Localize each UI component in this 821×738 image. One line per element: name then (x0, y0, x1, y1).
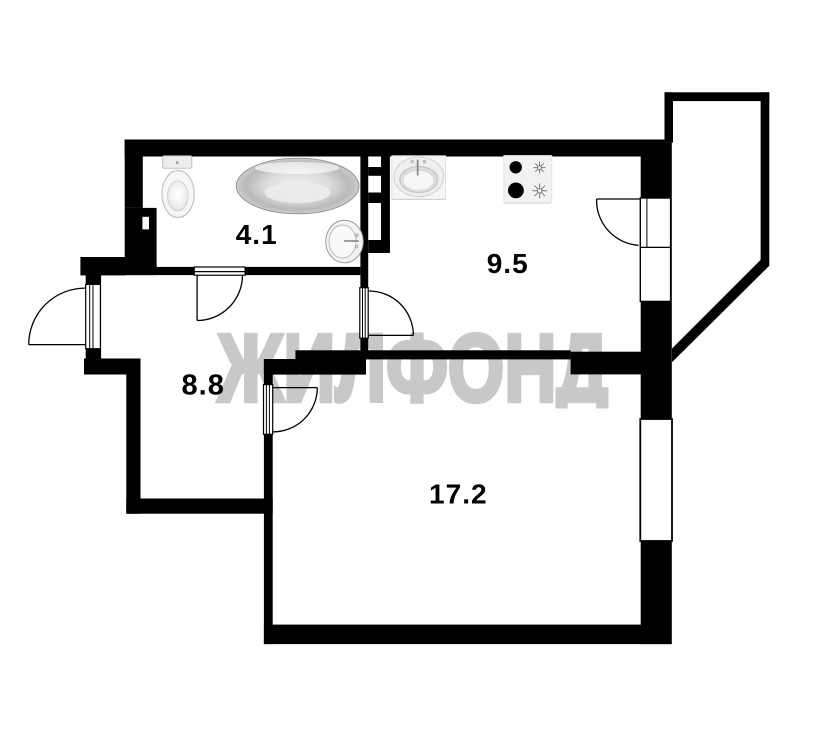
svg-text:4.1: 4.1 (236, 219, 278, 250)
svg-text:17.2: 17.2 (429, 479, 488, 510)
svg-text:8.8: 8.8 (182, 369, 225, 401)
svg-text:9.5: 9.5 (487, 248, 529, 279)
